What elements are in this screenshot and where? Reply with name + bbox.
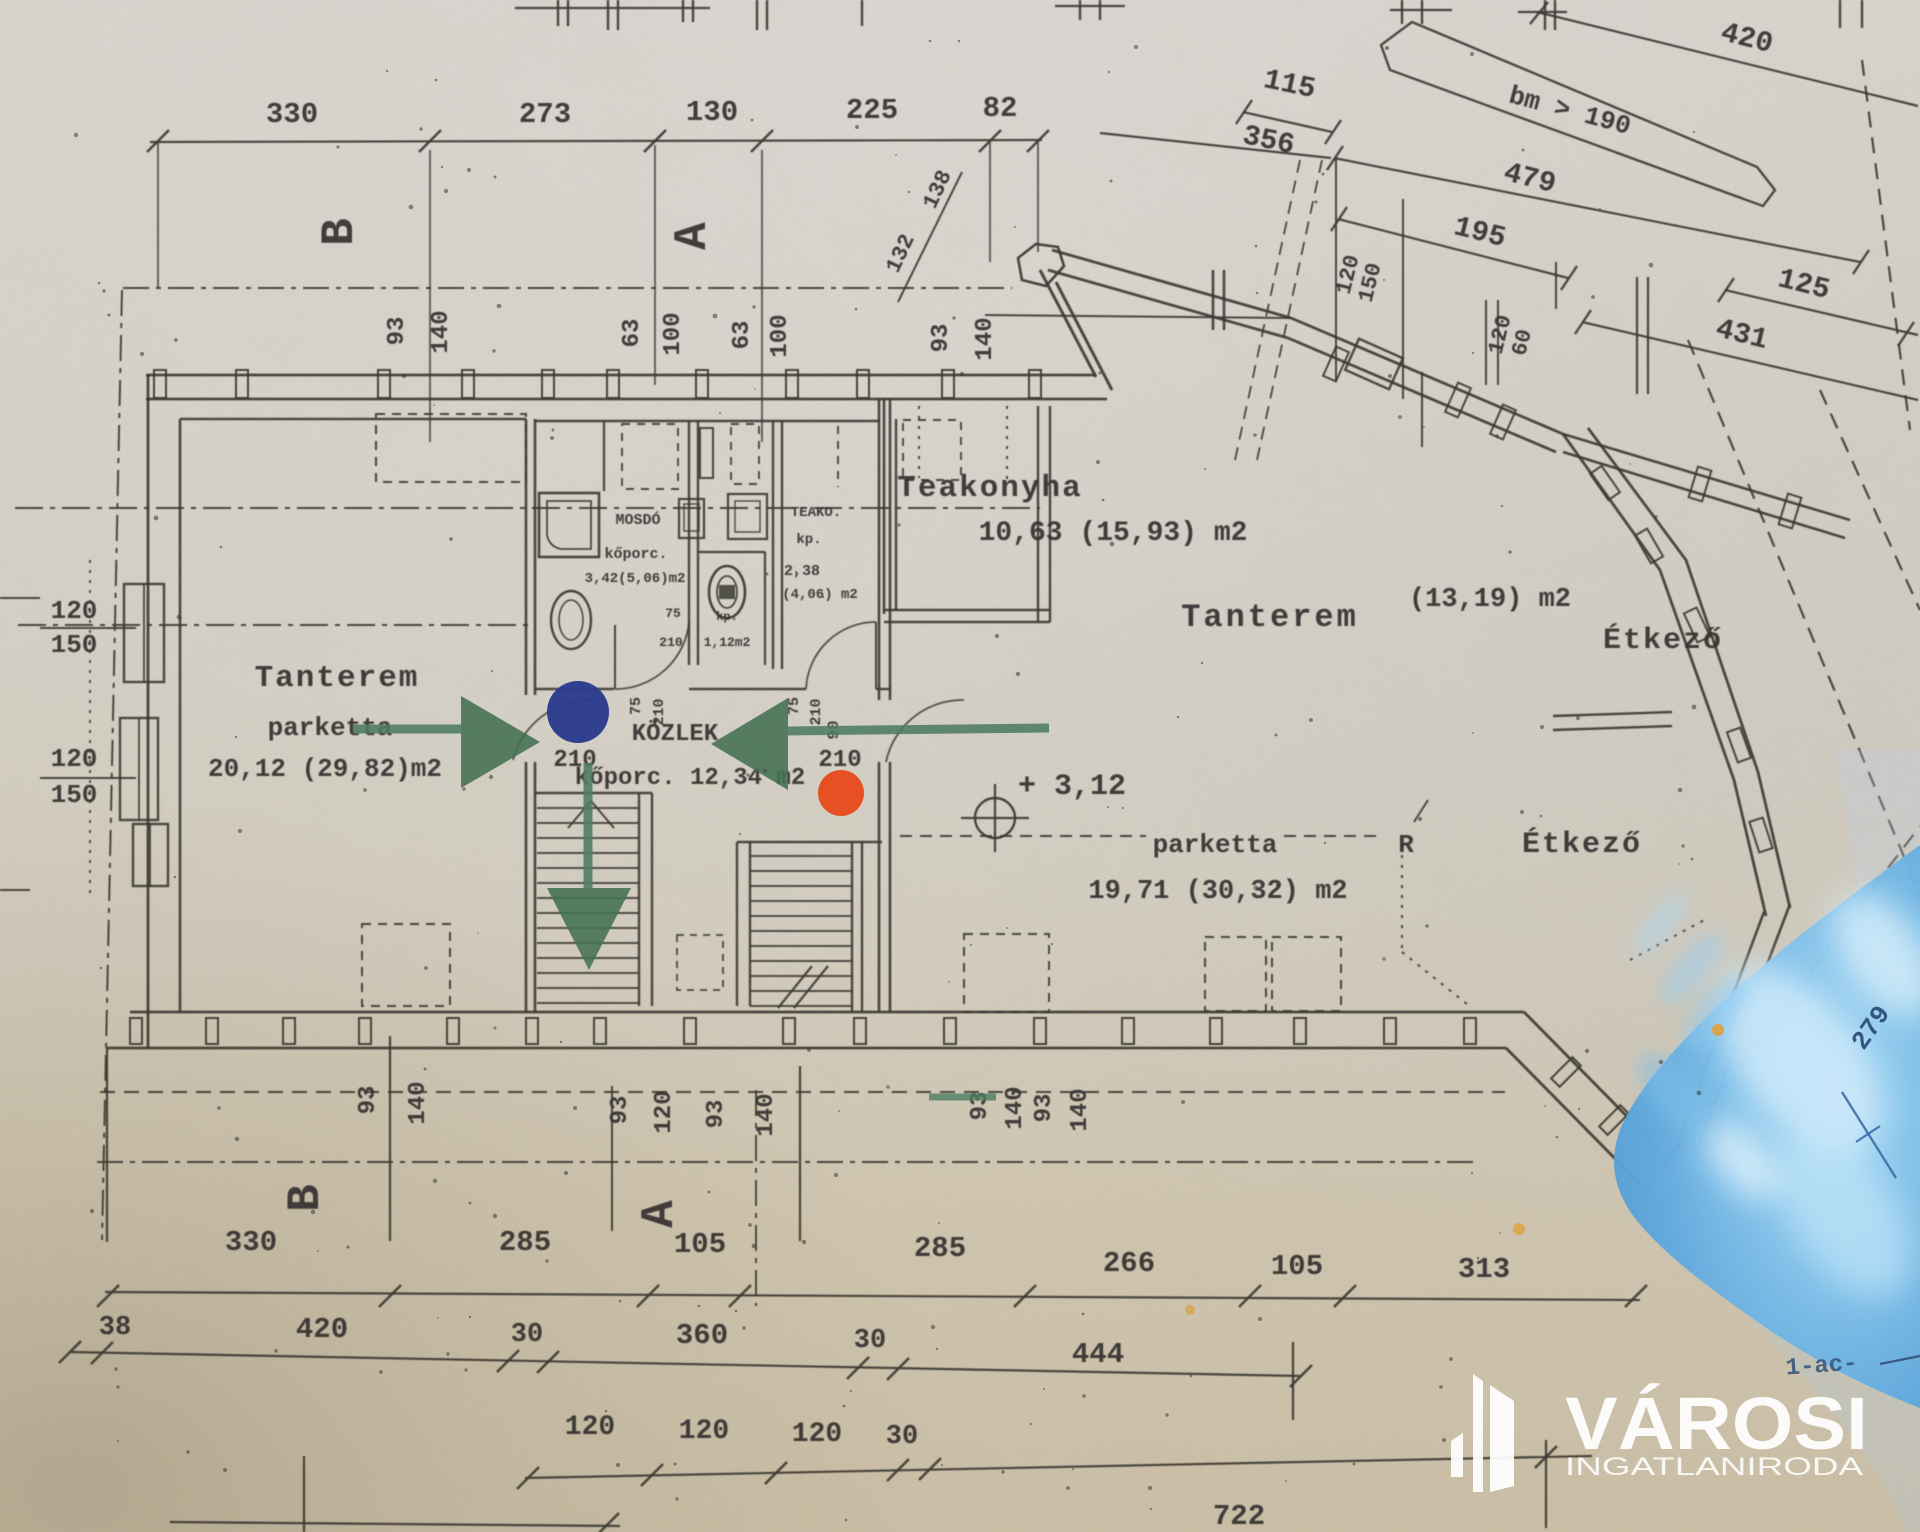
svg-text:B: B <box>314 218 366 246</box>
svg-text:KÖZLEK: KÖZLEK <box>632 720 719 748</box>
svg-text:19,71 (30,32) m2: 19,71 (30,32) m2 <box>1088 877 1347 907</box>
svg-text:(13,19) m2: (13,19) m2 <box>1409 585 1571 615</box>
svg-text:150: 150 <box>51 630 98 660</box>
svg-text:313: 313 <box>1458 1253 1510 1286</box>
svg-text:140: 140 <box>428 310 455 353</box>
svg-text:210: 210 <box>808 698 825 725</box>
svg-text:38: 38 <box>99 1313 131 1343</box>
svg-text:MOSDÓ: MOSDÓ <box>615 511 660 529</box>
svg-text:140: 140 <box>972 317 999 360</box>
svg-text:105: 105 <box>1271 1250 1323 1283</box>
svg-text:1-ac-: 1-ac- <box>1785 1351 1859 1383</box>
svg-text:20,12 (29,82)m2: 20,12 (29,82)m2 <box>208 754 442 784</box>
svg-text:63: 63 <box>729 321 756 350</box>
svg-text:330: 330 <box>266 98 318 131</box>
svg-text:+ 3,12: + 3,12 <box>1018 770 1126 804</box>
svg-text:150: 150 <box>51 780 98 810</box>
svg-text:444: 444 <box>1072 1338 1124 1371</box>
svg-text:Tanterem: Tanterem <box>1181 599 1359 636</box>
svg-text:Étkező: Étkező <box>1603 623 1723 658</box>
svg-text:120: 120 <box>51 744 98 774</box>
svg-text:75: 75 <box>628 697 645 715</box>
svg-text:Tanterem: Tanterem <box>255 661 420 696</box>
svg-text:kőporc.: kőporc. <box>604 546 667 563</box>
svg-text:210: 210 <box>818 747 861 774</box>
svg-text:330: 330 <box>225 1226 277 1259</box>
svg-text:120: 120 <box>51 596 98 626</box>
svg-text:105: 105 <box>674 1228 726 1261</box>
svg-text:1,12m2: 1,12m2 <box>704 635 751 650</box>
svg-text:kp.: kp. <box>716 610 738 624</box>
svg-text:A: A <box>634 1200 686 1228</box>
svg-text:120: 120 <box>651 1090 678 1133</box>
svg-text:R: R <box>1398 830 1414 860</box>
svg-text:93: 93 <box>1031 1094 1058 1123</box>
svg-text:120: 120 <box>792 1419 842 1450</box>
svg-text:2,38: 2,38 <box>784 563 820 580</box>
svg-text:A: A <box>667 222 719 250</box>
svg-text:120: 120 <box>565 1412 615 1443</box>
svg-text:210: 210 <box>651 698 668 725</box>
svg-text:285: 285 <box>499 1226 551 1259</box>
svg-text:82: 82 <box>983 92 1018 125</box>
svg-text:130: 130 <box>686 96 738 129</box>
svg-text:140: 140 <box>1002 1086 1029 1129</box>
svg-text:273: 273 <box>519 98 571 131</box>
svg-text:75: 75 <box>786 697 803 715</box>
svg-text:140: 140 <box>1067 1088 1094 1131</box>
svg-text:Étkező: Étkező <box>1522 827 1642 862</box>
svg-text:225: 225 <box>846 94 898 127</box>
svg-text:75: 75 <box>665 606 681 621</box>
svg-text:3,42(5,06)m2: 3,42(5,06)m2 <box>585 571 686 587</box>
svg-text:140: 140 <box>405 1081 432 1124</box>
svg-text:100: 100 <box>767 314 794 357</box>
svg-text:parketta: parketta <box>1153 830 1278 860</box>
svg-text:30: 30 <box>854 1326 886 1356</box>
svg-text:93: 93 <box>384 317 411 346</box>
svg-text:420: 420 <box>296 1313 348 1346</box>
svg-text:210: 210 <box>659 635 683 650</box>
svg-text:B: B <box>280 1184 332 1212</box>
svg-text:kp.: kp. <box>796 532 821 548</box>
svg-text:93: 93 <box>355 1086 382 1115</box>
svg-text:140: 140 <box>753 1093 780 1136</box>
svg-text:285: 285 <box>914 1232 966 1265</box>
svg-text:93: 93 <box>928 324 955 353</box>
svg-text:93: 93 <box>703 1100 730 1129</box>
svg-text:266: 266 <box>1103 1247 1155 1280</box>
svg-text:INGATLANIRODA: INGATLANIRODA <box>1565 1453 1863 1481</box>
svg-text:120: 120 <box>679 1416 729 1447</box>
svg-text:722: 722 <box>1213 1500 1265 1532</box>
svg-text:(4,06) m2: (4,06) m2 <box>782 587 858 603</box>
svg-text:30: 30 <box>886 1422 918 1452</box>
svg-text:Teakonyha: Teakonyha <box>897 471 1082 506</box>
svg-text:TEAKO.: TEAKO. <box>791 505 841 521</box>
svg-text:63: 63 <box>619 319 646 348</box>
svg-text:100: 100 <box>660 312 687 355</box>
svg-text:30: 30 <box>511 1320 543 1350</box>
svg-text:360: 360 <box>676 1319 728 1352</box>
